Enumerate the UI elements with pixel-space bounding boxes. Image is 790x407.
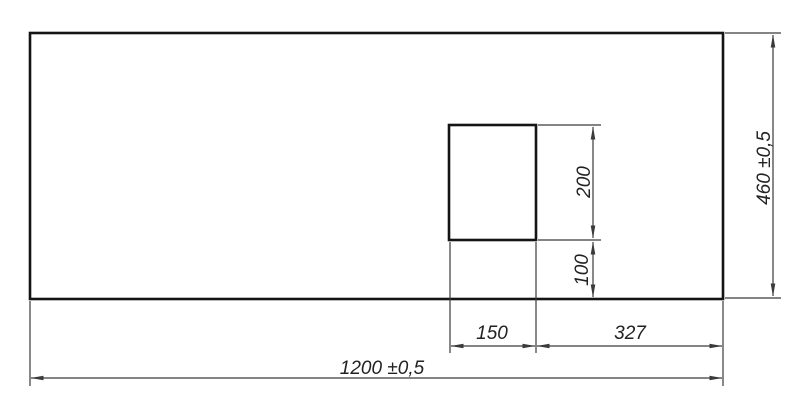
dim-label-cutout-width: 150	[476, 323, 508, 344]
dim-label-cutout-offset-right: 327	[614, 323, 647, 344]
extension-lines	[30, 33, 781, 386]
dim-label-overall-height: 460 ±0,5	[754, 131, 775, 205]
dim-label-cutout-height: 200	[574, 166, 595, 199]
dimension-drawing: 150 327 1200 ±0,5 200 100 460 ±0,5	[0, 0, 790, 407]
dim-label-overall-width: 1200 ±0,5	[340, 358, 425, 379]
dim-label-cutout-offset-bottom: 100	[572, 254, 593, 286]
cutout-outline	[449, 125, 536, 240]
outer-panel-outline	[30, 33, 723, 299]
dimension-labels: 150 327 1200 ±0,5 200 100 460 ±0,5	[340, 131, 775, 379]
technical-drawing-canvas: 150 327 1200 ±0,5 200 100 460 ±0,5	[0, 0, 790, 407]
dimension-lines	[31, 35, 773, 378]
